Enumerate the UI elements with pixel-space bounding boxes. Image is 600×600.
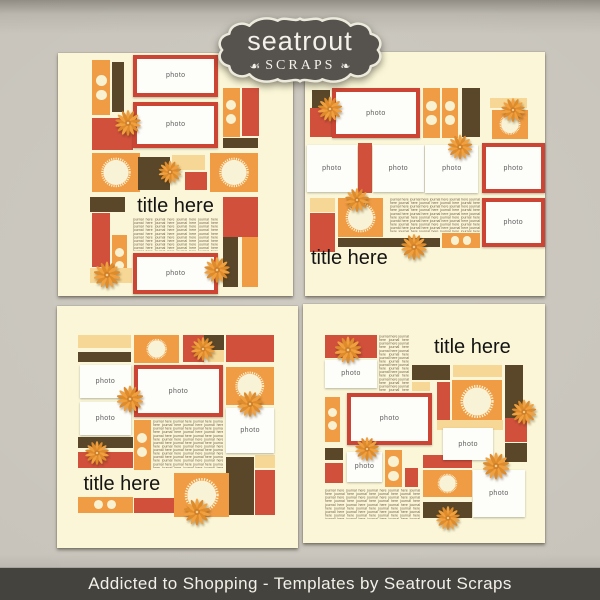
orange-paper-block: [242, 237, 258, 287]
hole-dot-icon: [388, 471, 398, 481]
photo-placeholder-framed: photo: [133, 102, 218, 149]
hole-dot-icon: [226, 114, 236, 124]
punched-tab-block: [78, 497, 132, 513]
tan-paper-block: [412, 382, 430, 390]
hole-dot-icon: [445, 115, 455, 125]
template-preview-bottom-right: photojournal here journal here journal h…: [303, 304, 545, 543]
photo-label: photo: [240, 427, 260, 434]
photo-label: photo: [96, 378, 116, 385]
flower-icon: [511, 399, 537, 425]
punched-tab-block: [442, 233, 480, 248]
flower-embellishment: [191, 337, 216, 362]
hole-dot-icon: [137, 447, 147, 457]
flower-icon: [345, 188, 370, 213]
red-paper-block: [358, 143, 373, 193]
title-text: title here: [84, 473, 161, 496]
hole-dot-icon: [426, 101, 436, 111]
brown-paper-block: [78, 352, 131, 362]
flower-icon: [116, 385, 144, 413]
brown-paper-block: [90, 197, 125, 212]
scalloped-circle-icon: [94, 155, 138, 190]
product-preview-image: seatrout ☙ SCRAPS ❧ photophototitle here…: [0, 0, 600, 600]
hole-dot-icon: [94, 500, 103, 509]
photo-label: photo: [504, 219, 524, 226]
layout-title-text: title here: [431, 336, 513, 358]
flower-embellishment: [334, 336, 362, 364]
photo-label: photo: [442, 165, 462, 172]
photo-label: photo: [341, 370, 361, 377]
photo-label: photo: [96, 415, 116, 422]
tan-paper-block: [453, 365, 502, 377]
flower-icon: [204, 256, 231, 283]
layout-title-text: title here: [84, 473, 171, 496]
brown-paper-block: [226, 457, 253, 515]
journaling-text: journal here journal here journal here j…: [379, 335, 409, 392]
journaling-text: journal here journal here journal here j…: [325, 489, 420, 519]
red-paper-block: [325, 463, 343, 483]
hole-dot-icon: [445, 101, 455, 111]
journaling-text: journal here journal here journal here j…: [153, 420, 224, 468]
photo-label: photo: [504, 165, 524, 172]
flower-embellishment: [482, 452, 510, 480]
flower-icon: [354, 437, 379, 462]
flower-icon: [85, 440, 110, 465]
journaling-text-block: journal here journal here journal here j…: [325, 489, 420, 519]
flower-icon: [317, 96, 343, 122]
hole-dot-icon: [328, 421, 337, 430]
flower-icon: [482, 452, 510, 480]
flower-embellishment: [400, 234, 427, 261]
brown-paper-block: [112, 62, 124, 112]
red-paper-block: [405, 468, 418, 487]
tan-paper-block: [78, 335, 131, 348]
photo-label: photo: [169, 388, 189, 395]
photo-label: photo: [489, 490, 509, 497]
photo-label: photo: [366, 110, 386, 117]
punched-tab-block: [423, 88, 440, 138]
layout-title-text: title here: [311, 246, 393, 270]
flower-embellishment: [204, 256, 231, 283]
red-paper-block: [92, 213, 110, 266]
photo-label: photo: [355, 463, 375, 470]
scalloped-circle-icon: [212, 155, 256, 190]
photo-placeholder: photo: [373, 145, 423, 192]
photo-label: photo: [389, 165, 409, 172]
brand-subtitle-row: ☙ SCRAPS ❧: [250, 58, 351, 74]
red-paper-block: [185, 172, 207, 190]
punched-tab-block: [442, 88, 458, 138]
scalloped-sticker-block: [92, 153, 140, 192]
flourish-left-icon: ☙: [250, 59, 261, 73]
scalloped-sticker-block: [210, 153, 258, 192]
hole-dot-icon: [107, 500, 116, 509]
punched-tab-block: [223, 88, 240, 137]
brand-name: seatrout: [247, 28, 353, 55]
flower-embellishment: [354, 437, 379, 462]
flower-embellishment: [511, 399, 537, 425]
flower-embellishment: [85, 440, 110, 465]
punched-tab-block: [385, 450, 402, 487]
photo-label: photo: [166, 121, 186, 128]
flower-icon: [191, 337, 216, 362]
hole-dot-icon: [463, 236, 471, 244]
journaling-text: journal here journal here journal here j…: [390, 198, 480, 232]
red-paper-block: [134, 498, 174, 513]
hole-dot-icon: [451, 236, 459, 244]
photo-placeholder-framed: photo: [133, 55, 218, 97]
photo-placeholder-framed: photo: [332, 88, 420, 138]
flower-embellishment: [116, 385, 144, 413]
journaling-text-block: journal here journal here journal here j…: [133, 218, 218, 250]
flower-embellishment: [183, 498, 211, 526]
photo-label: photo: [166, 72, 186, 79]
photo-placeholder-framed: photo: [134, 365, 224, 417]
red-paper-block: [437, 382, 450, 420]
template-preview-bottom-left: photophotophotophotojournal here journal…: [57, 306, 298, 548]
punched-tab-block: [92, 60, 110, 115]
tan-paper-block: [310, 198, 335, 212]
photo-placeholder-framed: photo: [482, 143, 544, 193]
title-text: title here: [434, 336, 511, 359]
scalloped-sticker-block: [423, 470, 472, 497]
scalloped-circle-icon: [454, 382, 500, 421]
scalloped-sticker-block: [452, 380, 502, 423]
scalloped-sticker-block: [134, 335, 179, 363]
flower-icon: [435, 505, 460, 530]
scalloped-circle-icon: [425, 472, 470, 495]
hole-dot-icon: [426, 115, 436, 125]
template-preview-top-right: photophotophotophotophotojournal here jo…: [305, 52, 545, 296]
brown-paper-block: [462, 88, 480, 137]
brown-paper-block: [325, 448, 343, 460]
punched-tab-block: [325, 397, 340, 442]
hole-dot-icon: [115, 248, 124, 257]
flower-embellishment: [115, 109, 142, 136]
flower-embellishment: [236, 391, 263, 418]
flower-icon: [93, 261, 121, 289]
flower-icon: [447, 134, 473, 160]
flower-embellishment: [435, 505, 460, 530]
photo-placeholder-framed: photo: [482, 198, 544, 247]
photo-placeholder: photo: [325, 360, 377, 388]
hole-dot-icon: [137, 433, 147, 443]
photo-label: photo: [322, 165, 342, 172]
journaling-text-block: journal here journal here journal here j…: [379, 335, 409, 392]
scalloped-circle-icon: [136, 337, 177, 361]
tan-paper-block: [255, 455, 274, 468]
template-preview-top-left: photophototitle herejournal here journal…: [58, 53, 293, 296]
red-paper-block: [242, 88, 259, 136]
hole-dot-icon: [226, 100, 236, 110]
flower-embellishment: [501, 97, 526, 122]
caption-text: Addicted to Shopping - Templates by Seat…: [88, 574, 512, 594]
flower-icon: [183, 498, 211, 526]
layout-title-text: title here: [131, 195, 220, 217]
flower-embellishment: [345, 188, 370, 213]
brown-paper-block: [223, 138, 258, 148]
brown-paper-block: [412, 365, 450, 380]
flower-embellishment: [317, 96, 343, 122]
flower-embellishment: [447, 134, 473, 160]
title-text: title here: [137, 195, 214, 218]
punched-tab-block: [134, 420, 151, 470]
red-paper-block: [255, 470, 274, 515]
red-paper-block: [223, 197, 258, 237]
hole-dot-icon: [96, 75, 107, 86]
red-paper-block: [226, 335, 273, 362]
brand-subtitle: SCRAPS: [265, 58, 335, 74]
flower-icon: [334, 336, 362, 364]
flower-icon: [400, 234, 427, 261]
hole-dot-icon: [96, 90, 107, 101]
flower-icon: [501, 97, 526, 122]
photo-label: photo: [458, 441, 478, 448]
photo-label: photo: [380, 415, 400, 422]
brand-badge: seatrout ☙ SCRAPS ❧: [209, 14, 391, 86]
hole-dot-icon: [328, 408, 337, 417]
flower-icon: [158, 160, 182, 184]
caption-bar: Addicted to Shopping - Templates by Seat…: [0, 567, 600, 600]
journaling-text-block: journal here journal here journal here j…: [153, 420, 224, 468]
journaling-text-block: journal here journal here journal here j…: [390, 198, 480, 232]
hole-dot-icon: [388, 456, 398, 466]
flourish-right-icon: ❧: [340, 59, 350, 73]
photo-label: photo: [166, 270, 186, 277]
title-text: title here: [311, 247, 388, 270]
flower-embellishment: [158, 160, 182, 184]
flower-embellishment: [93, 261, 121, 289]
badge-text: seatrout ☙ SCRAPS ❧: [209, 14, 391, 86]
photo-placeholder: photo: [307, 145, 357, 192]
flower-icon: [115, 109, 142, 136]
flower-icon: [236, 391, 263, 418]
journaling-text: journal here journal here journal here j…: [133, 218, 218, 250]
